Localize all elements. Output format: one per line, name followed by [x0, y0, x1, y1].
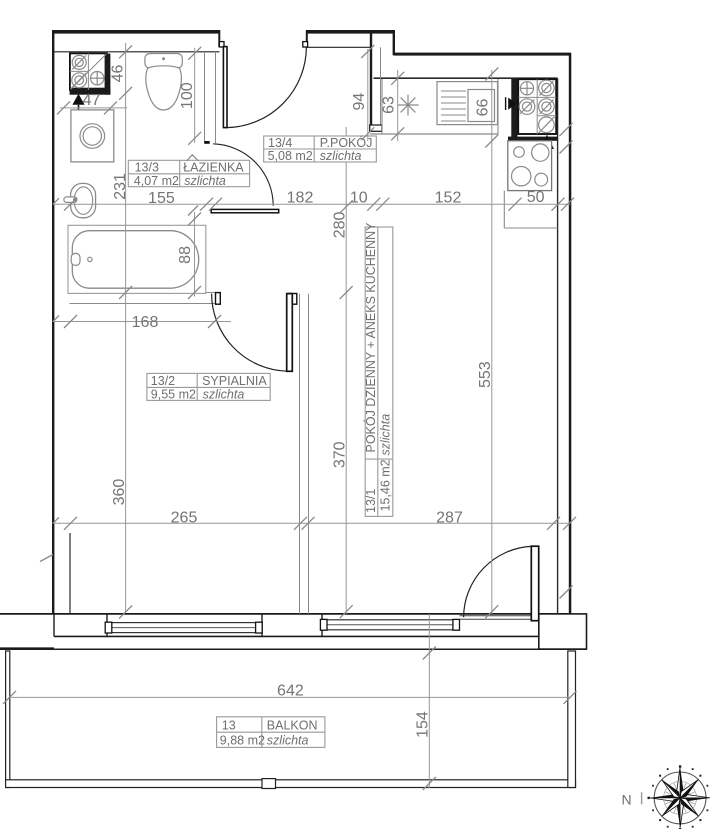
svg-text:9,88 m2: 9,88 m2 [220, 734, 265, 748]
svg-text:13/2: 13/2 [151, 374, 175, 388]
svg-text:154: 154 [415, 711, 432, 738]
svg-text:360: 360 [111, 479, 128, 506]
svg-text:szlichta: szlichta [184, 174, 226, 188]
svg-text:POKÓJ DZIENNY + ANEKS KUCHENNY: POKÓJ DZIENNY + ANEKS KUCHENNY [363, 222, 378, 453]
svg-text:SYPIALNIA: SYPIALNIA [202, 374, 267, 388]
svg-text:47: 47 [83, 92, 101, 109]
svg-text:287: 287 [436, 509, 463, 526]
svg-text:553: 553 [477, 361, 494, 388]
svg-text:N: N [622, 792, 632, 808]
svg-text:szlichta: szlichta [203, 387, 245, 401]
svg-text:46: 46 [109, 65, 126, 83]
svg-text:5,08 m2: 5,08 m2 [268, 149, 313, 163]
svg-text:100: 100 [179, 82, 196, 109]
svg-text:231: 231 [112, 173, 129, 200]
svg-text:13/1: 13/1 [364, 489, 378, 513]
svg-text:66: 66 [475, 99, 492, 117]
svg-text:280: 280 [331, 211, 348, 238]
svg-text:szlichta: szlichta [267, 734, 309, 748]
svg-text:265: 265 [171, 509, 198, 526]
svg-text:63: 63 [381, 96, 398, 114]
svg-text:13/3: 13/3 [135, 161, 159, 175]
svg-text:370: 370 [331, 441, 348, 468]
svg-text:88: 88 [177, 246, 194, 264]
svg-text:94: 94 [351, 93, 368, 111]
svg-text:168: 168 [132, 314, 159, 331]
svg-text:10: 10 [350, 189, 368, 206]
svg-text:13/4: 13/4 [268, 136, 292, 150]
svg-text:9,55 m2: 9,55 m2 [151, 387, 196, 401]
svg-text:152: 152 [435, 190, 462, 207]
svg-text:13: 13 [222, 718, 236, 732]
svg-text:155: 155 [148, 190, 175, 207]
svg-text:ŁAZIENKA: ŁAZIENKA [183, 161, 244, 175]
svg-text:50: 50 [527, 189, 545, 206]
svg-text:szlichta: szlichta [320, 149, 362, 163]
svg-text:15,46 m2: 15,46 m2 [379, 459, 393, 511]
svg-text:4,07 m2: 4,07 m2 [134, 174, 179, 188]
svg-text:szlichta: szlichta [379, 414, 393, 456]
svg-text:BALKON: BALKON [267, 718, 318, 732]
svg-text:182: 182 [287, 189, 314, 206]
svg-text:642: 642 [277, 683, 304, 700]
